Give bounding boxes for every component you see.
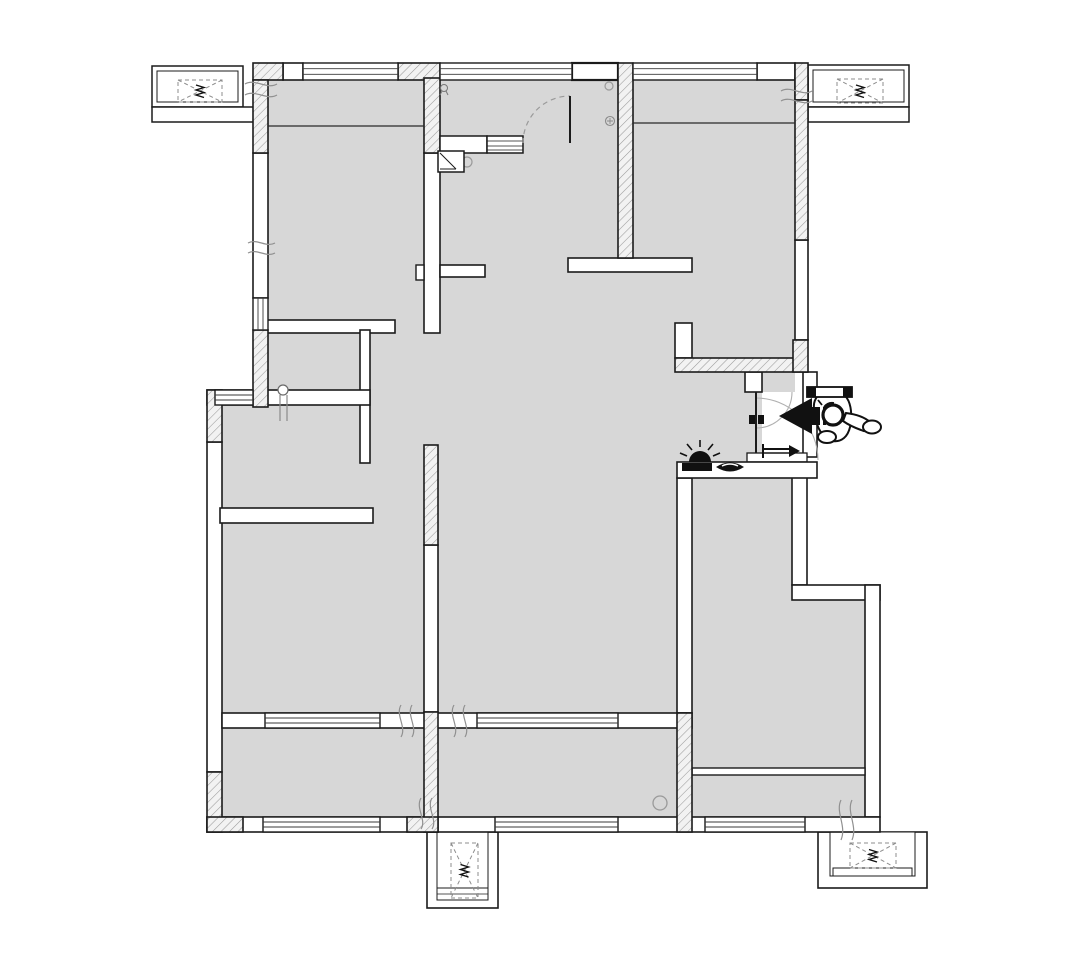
ac-balcony-top-left-inner [157, 71, 238, 102]
person-shoulder-end [843, 387, 852, 397]
person-foot [818, 431, 836, 443]
wall-foyer [677, 478, 692, 713]
floor-middle-rooms [222, 392, 795, 717]
floor-plan-page [0, 0, 1080, 972]
hatched-wall [795, 63, 808, 100]
ac-balcony-top-right-sill [808, 107, 909, 122]
hatched-wall [424, 445, 438, 545]
window [705, 817, 805, 832]
wall [757, 63, 795, 80]
wall [207, 442, 222, 772]
wall-divider [220, 508, 373, 523]
hatched-wall [424, 712, 438, 832]
window [303, 63, 398, 80]
floor-areas [222, 78, 867, 817]
door-jamb [745, 372, 762, 392]
person-hand [863, 421, 881, 434]
floor-right-lower [792, 598, 865, 817]
ac-balcony-top-left-sill [152, 107, 255, 122]
wall-closet [265, 320, 395, 333]
door-hinge [749, 415, 755, 424]
window [440, 63, 572, 80]
floor-plan-drawing [0, 0, 1080, 972]
window [495, 817, 618, 832]
wall [865, 585, 880, 817]
wall [283, 63, 303, 80]
hatched-wall-foyer [675, 358, 807, 372]
window [253, 298, 268, 330]
shoe-cabinet-slab [682, 463, 712, 471]
ac-balcony-bottom-right-sill [833, 868, 912, 876]
wall [795, 240, 808, 340]
hatched-wall [207, 817, 243, 832]
person-head [823, 405, 843, 425]
wall-stub [675, 323, 692, 358]
hatched-wall [793, 340, 808, 372]
window [215, 390, 253, 405]
window [477, 713, 618, 728]
wall-stub [416, 265, 424, 280]
ac-balcony-bottom-center-inner [437, 832, 488, 888]
wall [792, 473, 807, 585]
floor-bottom-strip [222, 717, 867, 817]
appliance [487, 136, 523, 153]
hatched-wall [795, 100, 808, 240]
plan-layers [152, 63, 927, 908]
floor-top-rooms [268, 78, 795, 392]
entry-threshold [747, 453, 807, 462]
window [265, 713, 380, 728]
duct-block [572, 63, 618, 80]
wall [253, 153, 268, 298]
person-shoulder-end [807, 387, 816, 397]
wall [424, 153, 440, 333]
hatched-wall [253, 63, 283, 80]
wall [424, 545, 438, 712]
pipe-riser [278, 385, 288, 395]
door-hinge [758, 415, 764, 424]
hatched-wall [253, 80, 268, 153]
window [633, 63, 757, 80]
window [263, 817, 380, 832]
hatched-wall [253, 330, 268, 407]
hatched-wall [677, 713, 692, 832]
wall-kitchen [568, 258, 692, 272]
wall-balcony-line [692, 768, 865, 775]
hatched-wall [424, 78, 440, 153]
wall-stub [440, 265, 485, 277]
hatched-wall [618, 63, 633, 258]
